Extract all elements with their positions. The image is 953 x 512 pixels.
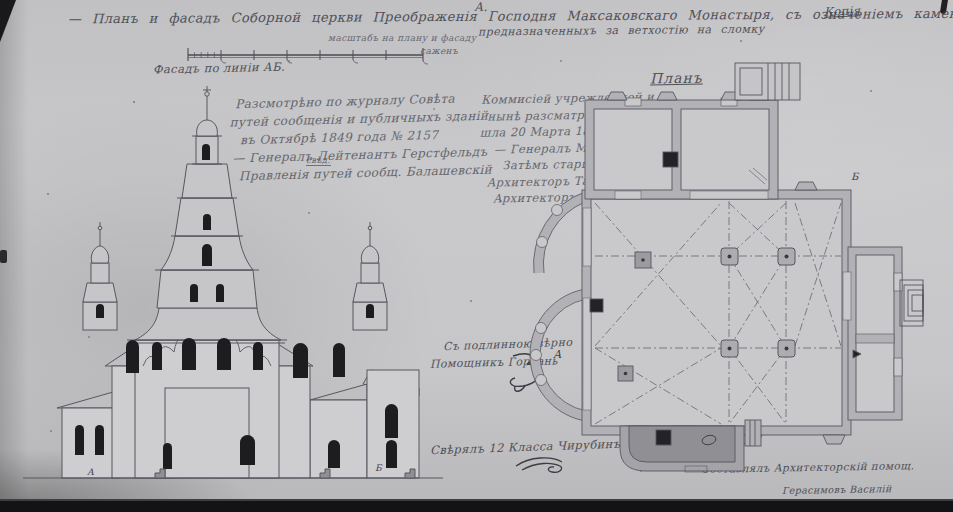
plan-chapel [620, 420, 761, 472]
photo-bottom-edge [0, 499, 953, 512]
scale-bar [183, 42, 433, 66]
facade-marker-a: А [87, 467, 94, 477]
plan-right-arm [848, 247, 923, 420]
archival-photo: — Планъ и фасадъ Соборной церкви Преобра… [0, 0, 953, 512]
photo-edge-dash [0, 250, 7, 263]
plan-marker-a: А [553, 348, 562, 361]
plan-nave [582, 190, 851, 435]
copy-note: Копія [824, 3, 861, 18]
draftsman-line2: Герасимовъ Василій [782, 483, 892, 496]
plan-drawing: А Б [525, 58, 953, 478]
dark-pier [663, 152, 678, 167]
plan-marker-b: Б [851, 171, 860, 182]
plan-stair-tower [735, 63, 800, 100]
section-letter-a: А. [474, 0, 488, 14]
facade-drawing: А Б [15, 70, 450, 485]
plan-top-rooms [585, 92, 778, 199]
